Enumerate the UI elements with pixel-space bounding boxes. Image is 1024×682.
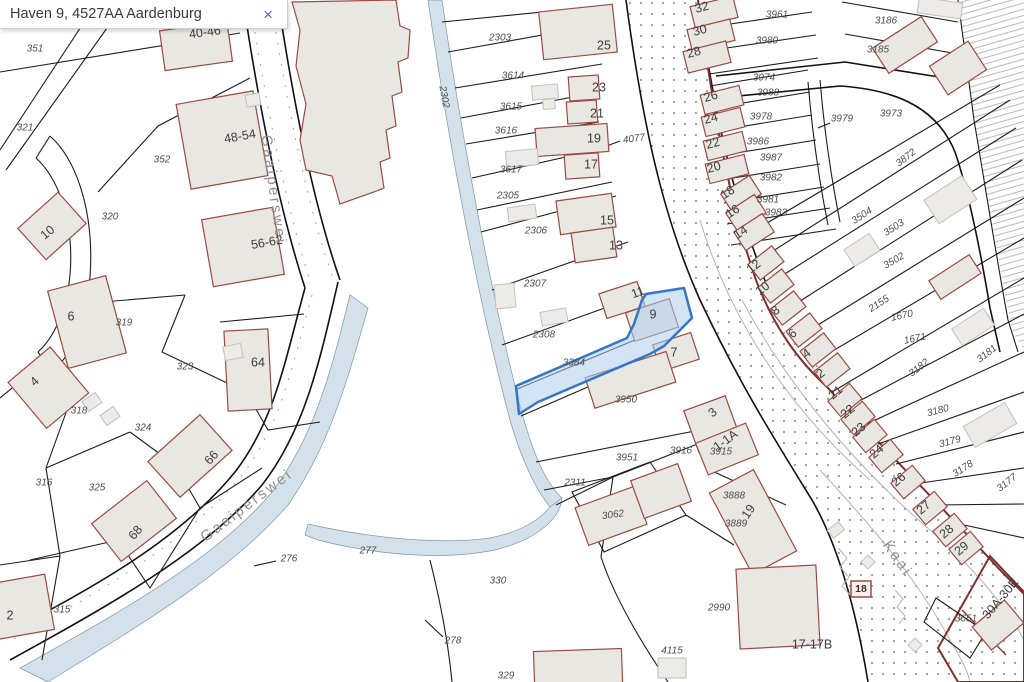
parcel-number-label: 3982 bbox=[760, 173, 783, 184]
parcel-number-label: 323 bbox=[177, 362, 194, 373]
parcel-number-label: 3614 bbox=[502, 71, 525, 82]
parcel-number-label: 2155 bbox=[866, 293, 892, 315]
house-number-label: 15 bbox=[600, 213, 614, 227]
parcel-number-label: 324 bbox=[135, 423, 152, 434]
map-viewer: 3513213523203193233183243163253152762773… bbox=[0, 0, 1024, 682]
parcel-number-label: 320 bbox=[102, 212, 119, 223]
house-number-label: 13 bbox=[609, 238, 623, 252]
search-input[interactable]: Haven 9, 4527AA Aardenburg bbox=[10, 6, 202, 22]
parcel-number-label: 3973 bbox=[880, 109, 903, 120]
parcel-number-label: 3974 bbox=[753, 73, 776, 84]
house-number-label: 17 bbox=[584, 157, 598, 171]
house-number-label: 21 bbox=[590, 106, 604, 120]
house-number-label: 23 bbox=[592, 80, 606, 94]
parcel-number-label: 3651 bbox=[955, 614, 977, 625]
parcel-number-label: 3979 bbox=[831, 114, 854, 125]
parcel-number-label: 276 bbox=[280, 554, 298, 565]
parcel-number-label: 3181 bbox=[975, 343, 999, 365]
parcel-number-label: 277 bbox=[359, 546, 377, 557]
parcel-number-label: 4115 bbox=[661, 646, 683, 657]
parcel-number-label: 3961 bbox=[766, 10, 788, 21]
house-number-label: 25 bbox=[597, 38, 611, 52]
parcel-number-label: 3916 bbox=[670, 446, 693, 457]
parcel-number-label: 2307 bbox=[523, 279, 547, 290]
parcel-number-label: 321 bbox=[17, 123, 34, 134]
parcel-number-label: 2305 bbox=[496, 191, 520, 202]
search-box[interactable]: Haven 9, 4527AA Aardenburg × bbox=[0, 0, 288, 29]
parcel-number-label: 3986 bbox=[747, 137, 770, 148]
parcel-number-label: 3384 bbox=[563, 358, 586, 369]
house-number-label: 17-17B bbox=[792, 637, 832, 651]
parcel-number-label: 3988 bbox=[757, 88, 780, 99]
route-number-label: 18 bbox=[855, 583, 867, 595]
parcel-number-label: 3186 bbox=[875, 16, 898, 27]
parcel-number-label: 2308 bbox=[532, 330, 556, 341]
parcel-number-label: 1670 bbox=[890, 308, 914, 323]
parcel-number-label: 3987 bbox=[760, 153, 783, 164]
parcel-number-label: 3504 bbox=[850, 205, 875, 227]
parcel-number-label: 278 bbox=[444, 636, 462, 647]
house-number-label: 2 bbox=[7, 608, 14, 622]
parcel-number-label: 352 bbox=[154, 155, 171, 166]
parcel-number-label: 318 bbox=[71, 406, 88, 417]
parcel-number-label: 3981 bbox=[757, 195, 779, 206]
house-number-label: 64 bbox=[251, 355, 265, 369]
parcel-number-label: 316 bbox=[36, 478, 53, 489]
house-number-label: 7 bbox=[671, 345, 678, 359]
parcel-number-label: 3617 bbox=[500, 165, 523, 176]
parcel-number-label: 330 bbox=[490, 576, 507, 587]
parcel-number-label: 351 bbox=[27, 44, 44, 55]
parcel-number-label: 4077 bbox=[622, 132, 646, 146]
house-number-label: 6 bbox=[68, 309, 75, 323]
parcel-number-label: 3180 bbox=[926, 403, 951, 419]
house-number-label: 9 bbox=[650, 307, 657, 321]
parcel-number-label: 3185 bbox=[867, 45, 890, 56]
parcel-number-label: 329 bbox=[498, 671, 515, 682]
parcel-number-label: 2311 bbox=[563, 478, 586, 489]
parcel-number-label: 3978 bbox=[750, 112, 773, 123]
parcel-number-label: 2306 bbox=[524, 226, 548, 237]
parcel-number-label: 1671 bbox=[903, 331, 927, 346]
cadastral-map-canvas[interactable]: 3513213523203193233183243163253152762773… bbox=[0, 0, 1024, 682]
parcel-number-label: 325 bbox=[89, 483, 106, 494]
parcel-number-label: 319 bbox=[116, 318, 133, 329]
parcel-number-label: 315 bbox=[54, 605, 71, 616]
parcel-number-label: 3888 bbox=[723, 491, 746, 502]
parcel-number-label: 3182 bbox=[907, 357, 932, 380]
parcel-number-label: 3889 bbox=[725, 519, 748, 530]
parcel-number-label: 3951 bbox=[616, 453, 638, 464]
parcel-number-label: 2303 bbox=[488, 33, 512, 44]
parcel-number-label: 2990 bbox=[707, 603, 731, 614]
parcel-number-label: 3950 bbox=[615, 395, 638, 406]
house-number-label: 19 bbox=[587, 131, 601, 145]
parcel-number-label: 3980 bbox=[756, 36, 779, 47]
parcel-number-label: 3983 bbox=[765, 208, 788, 219]
close-icon[interactable]: × bbox=[259, 4, 277, 25]
parcel-number-label: 3177 bbox=[995, 472, 1020, 495]
parcel-number-label: 3615 bbox=[500, 102, 523, 113]
parcel-number-label: 3616 bbox=[495, 126, 518, 137]
parcel-number-label: 3502 bbox=[882, 251, 907, 272]
